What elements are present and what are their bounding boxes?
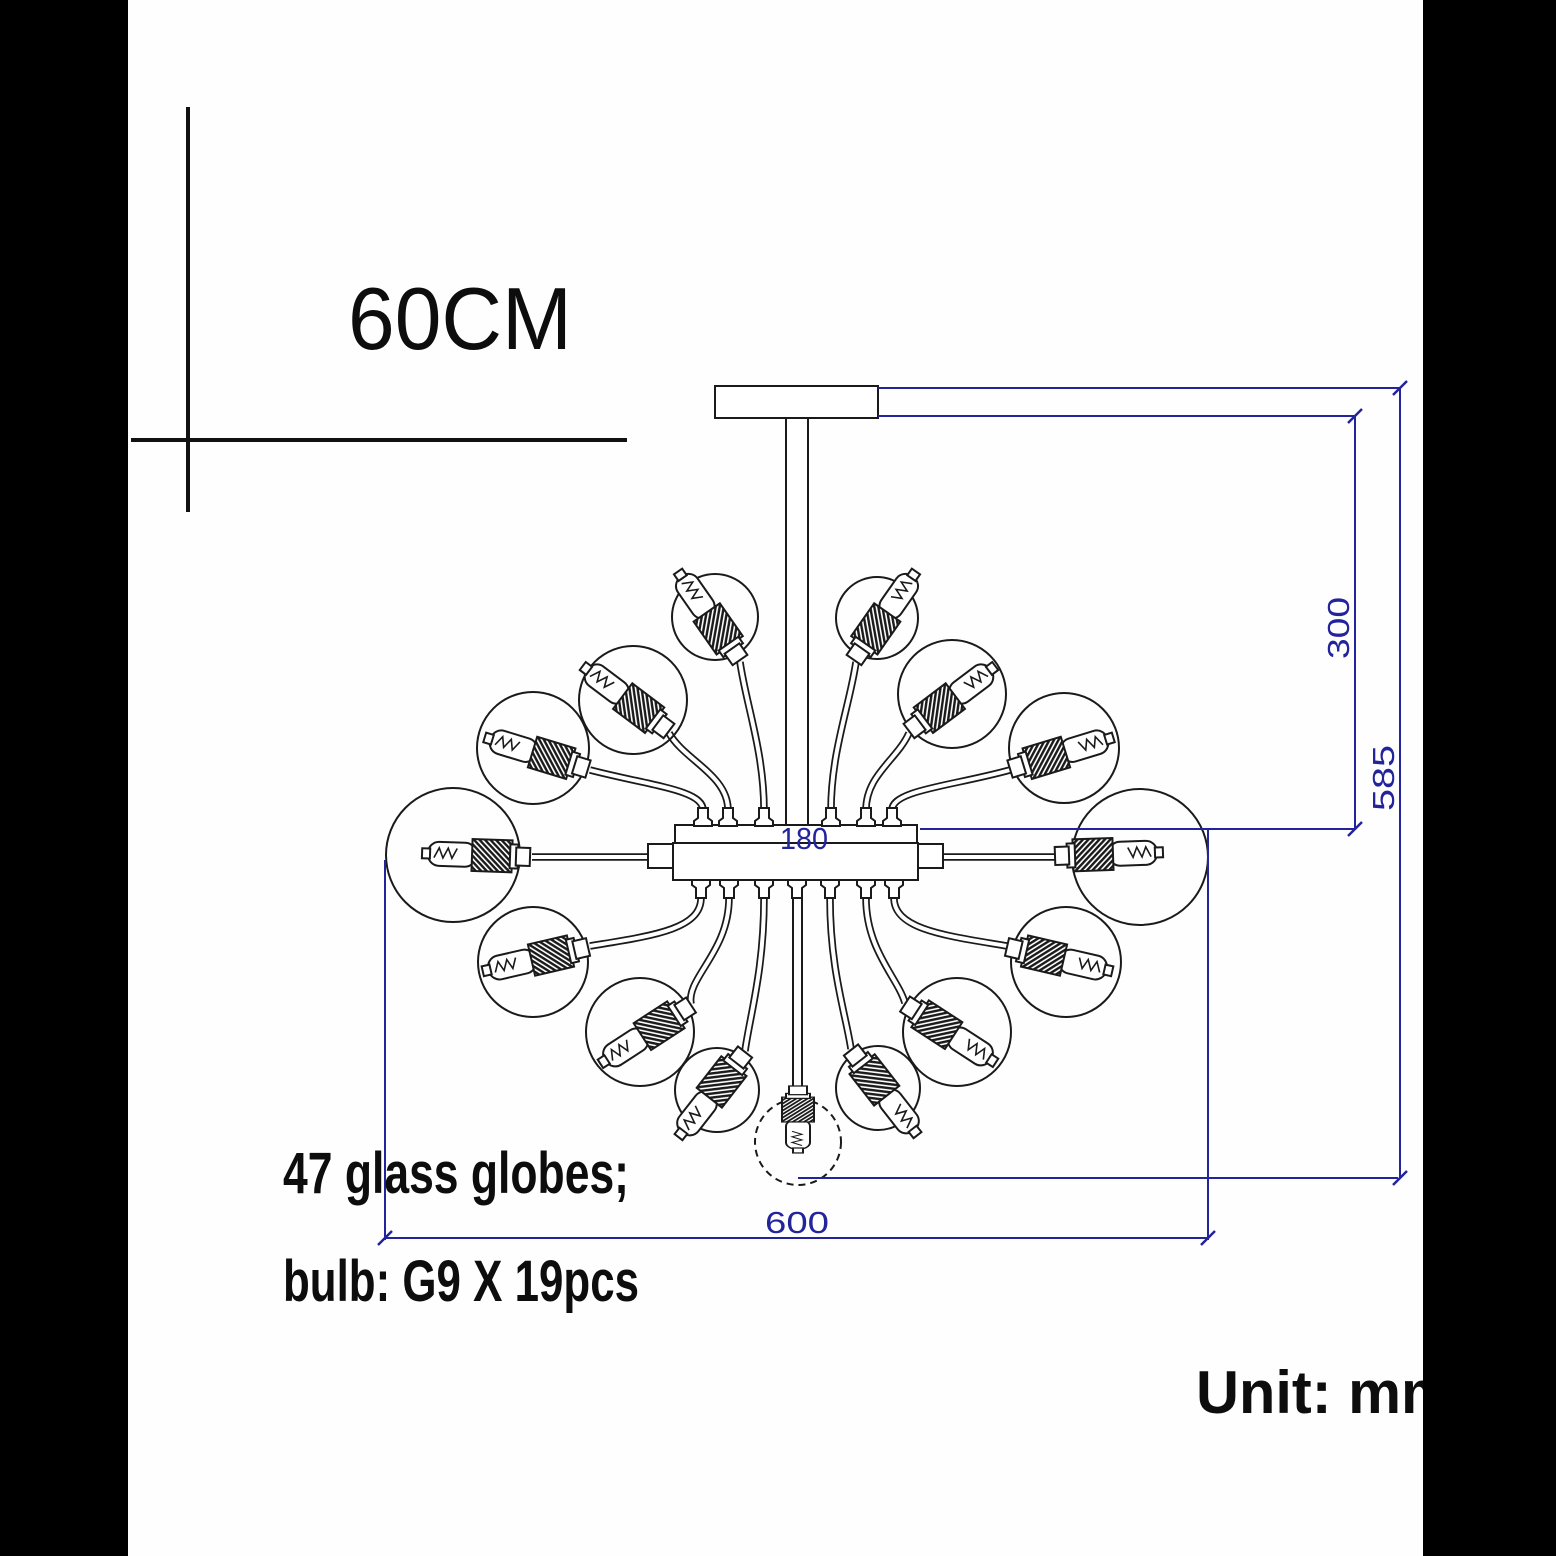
bulb-note: bulb: G9 X 19pcs	[283, 1249, 639, 1314]
dim-total-height-label: 585	[1366, 745, 1401, 811]
globes-note: 47 glass globes;	[283, 1141, 629, 1206]
unit-note: Unit: mm	[1196, 1359, 1454, 1426]
g9-bulb-icon	[782, 1086, 814, 1153]
lower-stem-rod	[793, 880, 802, 1088]
ceiling-canopy	[715, 386, 878, 418]
chandelier-dimension-diagram: 60CM	[0, 0, 1556, 1556]
stem-rod	[786, 416, 808, 828]
hub-left-coupler	[648, 844, 673, 868]
dim-drop-height-label: 300	[1321, 597, 1356, 659]
right-matte-band	[1423, 0, 1556, 1556]
dim-width-label: 600	[765, 1205, 829, 1240]
dim-hub-length-label: 180	[780, 821, 828, 856]
size-marker-label: 60CM	[348, 269, 572, 368]
hub-right-coupler	[918, 844, 943, 868]
product-dimension-sheet: 60CM	[0, 0, 1556, 1556]
left-matte-band	[0, 0, 128, 1556]
background	[0, 0, 1556, 1556]
